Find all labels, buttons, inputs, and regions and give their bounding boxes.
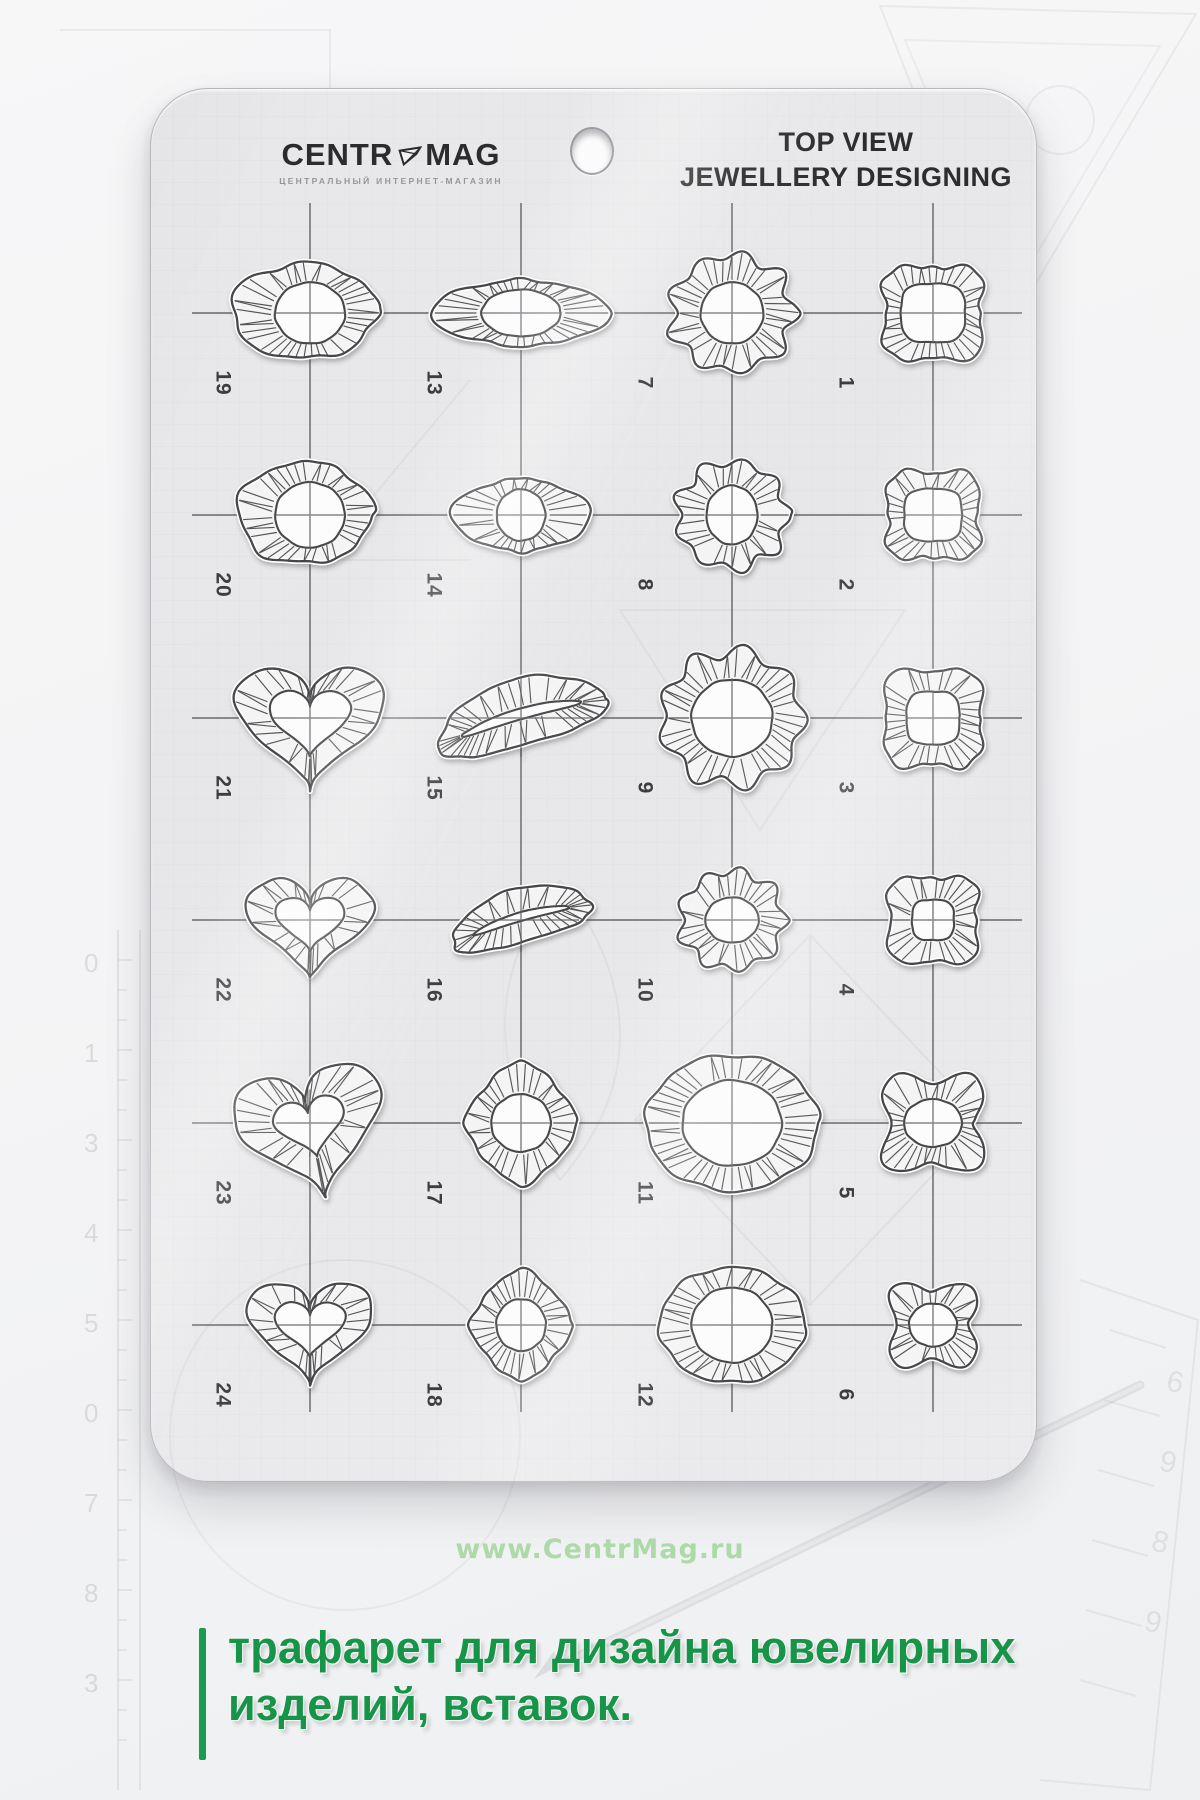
diamond-icon bbox=[395, 142, 424, 169]
caption-accent-bar bbox=[199, 1628, 206, 1760]
brand-logo: CENTRMAG ЦЕНТРАЛЬНЫЙ ИНТЕРНЕТ-МАГАЗИН bbox=[221, 137, 561, 186]
plate-title-line2: JEWELLERY DESIGNING bbox=[661, 160, 1031, 195]
svg-text:9: 9 bbox=[1157, 1445, 1180, 1481]
svg-text:7: 7 bbox=[84, 1488, 98, 1518]
brand-logo-part1: CENTR bbox=[281, 137, 393, 172]
svg-text:5: 5 bbox=[84, 1308, 98, 1338]
svg-text:8: 8 bbox=[84, 1578, 98, 1608]
watermark: www.CentrMag.ru bbox=[400, 1534, 800, 1565]
svg-text:1: 1 bbox=[84, 1038, 98, 1068]
brand-logo-part2: MAG bbox=[425, 137, 500, 172]
brand-logo-text: CENTRMAG bbox=[221, 137, 561, 173]
svg-text:3: 3 bbox=[84, 1128, 98, 1158]
svg-text:8: 8 bbox=[1149, 1525, 1172, 1561]
caption-line1: трафарет для дизайна ювелирных bbox=[228, 1620, 1016, 1677]
svg-text:0: 0 bbox=[84, 1398, 98, 1428]
caption-line2: изделий, вставок. bbox=[228, 1677, 1016, 1734]
hanging-hole bbox=[570, 127, 614, 175]
stencil-plate: CENTRMAG ЦЕНТРАЛЬНЫЙ ИНТЕРНЕТ-МАГАЗИН TO… bbox=[150, 88, 1037, 1482]
svg-text:3: 3 bbox=[84, 1668, 98, 1698]
svg-text:9: 9 bbox=[1142, 1605, 1165, 1641]
product-photo: 013 450 783 6 9 8 9 CENTRMAG ЦЕНТРАЛЬНЫЙ bbox=[0, 0, 1200, 1800]
caption: трафарет для дизайна ювелирных изделий, … bbox=[199, 1620, 1016, 1733]
svg-text:0: 0 bbox=[84, 948, 98, 978]
plate-title: TOP VIEW JEWELLERY DESIGNING bbox=[661, 125, 1031, 194]
plate-title-line1: TOP VIEW bbox=[661, 125, 1031, 160]
brand-logo-tagline: ЦЕНТРАЛЬНЫЙ ИНТЕРНЕТ-МАГАЗИН bbox=[221, 176, 561, 186]
caption-text: трафарет для дизайна ювелирных изделий, … bbox=[228, 1620, 1016, 1733]
svg-text:6: 6 bbox=[1164, 1365, 1187, 1401]
svg-text:4: 4 bbox=[84, 1218, 98, 1248]
